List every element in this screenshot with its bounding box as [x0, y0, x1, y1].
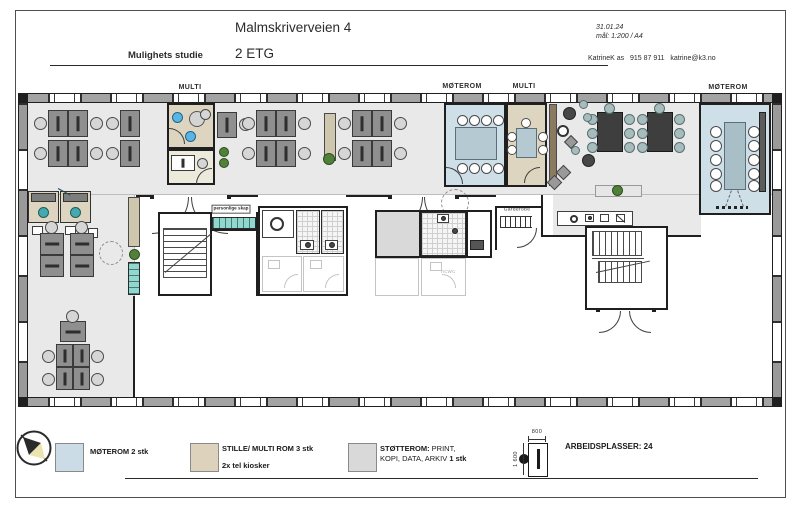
- top-wall-windows: [18, 93, 782, 103]
- desk-icon: [73, 367, 90, 390]
- wall-icon: [495, 206, 543, 208]
- chair-icon: [34, 117, 47, 130]
- plant-icon: [612, 185, 623, 196]
- chair-icon: [338, 117, 351, 130]
- wall-icon: [136, 195, 152, 197]
- chair-icon: [91, 350, 104, 363]
- coat-rack-icon: [500, 216, 532, 228]
- cabinet-icon: [128, 197, 140, 247]
- tall-cabinet: [549, 104, 557, 186]
- desk-icon: [56, 344, 73, 367]
- plant-icon: [219, 158, 229, 168]
- chair-icon: [583, 113, 592, 122]
- chair-icon: [587, 142, 598, 153]
- room-label-moterom-right: MØTEROM: [708, 83, 747, 93]
- floor-plan: MULTI MØTEROM MULTI MØTEROM SOSIAL SONE/…: [0, 0, 800, 506]
- meeting-table: [724, 122, 746, 190]
- chair-icon: [507, 145, 517, 155]
- desk-icon: [352, 110, 372, 137]
- desk-icon: [56, 367, 73, 390]
- desk-icon: [120, 140, 140, 167]
- desk-icon: [276, 110, 296, 137]
- chair-icon: [172, 112, 183, 123]
- door-arc: [517, 228, 537, 248]
- dining-table: [647, 112, 673, 152]
- kiosk-desk: [31, 193, 56, 202]
- chair-icon: [710, 126, 722, 138]
- sink-unit: [470, 240, 484, 250]
- sink-icon: [270, 217, 284, 231]
- multi-table: [516, 128, 537, 158]
- partition-wall: [133, 296, 135, 397]
- wall-icon: [466, 212, 468, 256]
- room-label-multi-left: MULTI: [179, 83, 202, 93]
- toilet-seat-icon: [305, 242, 311, 248]
- chair-icon: [185, 131, 196, 142]
- chair-icon: [710, 140, 722, 152]
- chair-icon: [90, 117, 103, 130]
- dining-table: [597, 112, 623, 152]
- desk-icon: [68, 140, 88, 167]
- wall-icon: [495, 206, 497, 250]
- wall-icon: [541, 195, 543, 237]
- media-wall: [759, 112, 766, 192]
- meeting-table: [455, 127, 497, 160]
- kiosk-desk: [63, 193, 88, 202]
- chair-icon: [469, 163, 480, 174]
- chair-icon: [637, 114, 648, 125]
- chair-icon: [710, 180, 722, 192]
- desk-icon: [352, 140, 372, 167]
- desk-icon: [48, 140, 68, 167]
- desk-icon: [120, 110, 140, 137]
- chair-icon: [242, 117, 255, 130]
- chair-icon: [38, 207, 49, 218]
- chair-icon: [637, 142, 648, 153]
- chair-icon: [571, 146, 580, 155]
- appliance-icon: [600, 214, 609, 222]
- desk-icon: [40, 255, 64, 277]
- wall-corner: [18, 397, 28, 407]
- wheelchair-icon: [452, 228, 458, 234]
- desk-icon: [48, 110, 68, 137]
- chair-icon: [579, 100, 588, 109]
- desk-icon: [40, 233, 64, 255]
- chair-icon: [42, 373, 55, 386]
- chair-icon: [106, 117, 119, 130]
- desk-icon: [256, 140, 276, 167]
- chair-icon: [457, 115, 468, 126]
- chair-icon: [481, 115, 492, 126]
- room-label-garderobe: Garderobe: [504, 208, 531, 215]
- stair-treads: [592, 231, 642, 256]
- plant-icon: [219, 147, 229, 157]
- chair-icon: [338, 147, 351, 160]
- wall-icon: [210, 229, 258, 231]
- chair-icon: [538, 132, 548, 142]
- chair-icon: [242, 147, 255, 160]
- chair-icon: [624, 142, 635, 153]
- door-post: [455, 195, 459, 199]
- desk-icon: [372, 140, 392, 167]
- chair-icon: [298, 147, 311, 160]
- wall-corner: [772, 397, 782, 407]
- desk-icon: [256, 110, 276, 137]
- room-label-multi-center: MULTI: [513, 82, 536, 92]
- desk-icon: [276, 140, 296, 167]
- chair-icon: [394, 147, 407, 160]
- door-post: [388, 195, 392, 199]
- chair-icon: [66, 310, 79, 323]
- chair-icon: [493, 163, 504, 174]
- desk-icon: [68, 110, 88, 137]
- chair-icon: [637, 128, 648, 139]
- plant-icon: [129, 249, 140, 260]
- toilet-seat-icon: [441, 216, 446, 221]
- desk-icon: [70, 233, 94, 255]
- wall-icon: [228, 195, 258, 197]
- chair-icon: [710, 168, 722, 180]
- chair-icon: [197, 158, 208, 169]
- door-arc: [629, 311, 651, 333]
- chair-icon: [394, 117, 407, 130]
- plant-icon: [323, 153, 335, 165]
- chair-icon: [521, 118, 531, 128]
- chair-icon: [75, 221, 88, 234]
- chair-icon: [654, 103, 665, 114]
- chair-icon: [200, 109, 211, 120]
- wall-corner: [18, 93, 28, 103]
- chair-icon: [604, 103, 615, 114]
- chair-icon: [45, 221, 58, 234]
- kopi-data-room: [377, 212, 419, 256]
- ring-icon: [557, 125, 569, 137]
- chair-icon: [624, 114, 635, 125]
- stair-landing: [592, 258, 644, 259]
- column-marker: [99, 241, 123, 265]
- chair-icon: [34, 147, 47, 160]
- wall-icon: [346, 195, 390, 197]
- right-wall-windows: [772, 103, 782, 397]
- desk-icon: [73, 344, 90, 367]
- bottom-wall-windows: [18, 397, 782, 407]
- pouf-icon: [563, 107, 576, 120]
- room-label-moterom-center: MØTEROM: [442, 82, 481, 92]
- chair-icon: [298, 117, 311, 130]
- chair-icon: [674, 114, 685, 125]
- box-icon: [430, 262, 442, 271]
- box-icon: [268, 260, 280, 269]
- stair-treads: [163, 228, 207, 278]
- locker-strip: [128, 262, 140, 295]
- personal-lockers: [212, 217, 256, 229]
- chair-icon: [106, 147, 119, 160]
- chair-icon: [42, 350, 55, 363]
- chair-icon: [538, 145, 548, 155]
- door-arc: [599, 311, 621, 333]
- chair-icon: [493, 115, 504, 126]
- chair-icon: [481, 163, 492, 174]
- wall-icon: [456, 195, 496, 197]
- desk-icon: [171, 155, 195, 171]
- chair-icon: [710, 154, 722, 166]
- pouf-icon: [582, 154, 595, 167]
- chair-icon: [674, 142, 685, 153]
- chair-icon: [587, 128, 598, 139]
- desk-icon: [372, 110, 392, 137]
- desk-icon: [70, 255, 94, 277]
- chair-icon: [90, 147, 103, 160]
- chair-icon: [70, 207, 81, 218]
- box-icon: [375, 258, 419, 296]
- chair-icon: [469, 115, 480, 126]
- wall-corner: [772, 93, 782, 103]
- chair-icon: [674, 128, 685, 139]
- chair-icon: [507, 132, 517, 142]
- door-post: [596, 308, 600, 312]
- left-wall-windows: [18, 103, 28, 397]
- chair-icon: [624, 128, 635, 139]
- desk-icon: [217, 112, 237, 138]
- toilet-seat-icon: [329, 242, 335, 248]
- chair-icon: [91, 373, 104, 386]
- box-icon: [310, 260, 322, 269]
- drawing-sheet: Mulighets studie Malmskriverveien 4 2 ET…: [0, 0, 800, 506]
- sink-icon: [570, 215, 578, 223]
- burner-icon: [588, 216, 592, 220]
- desk-icon: [60, 321, 86, 342]
- door-post: [652, 308, 656, 312]
